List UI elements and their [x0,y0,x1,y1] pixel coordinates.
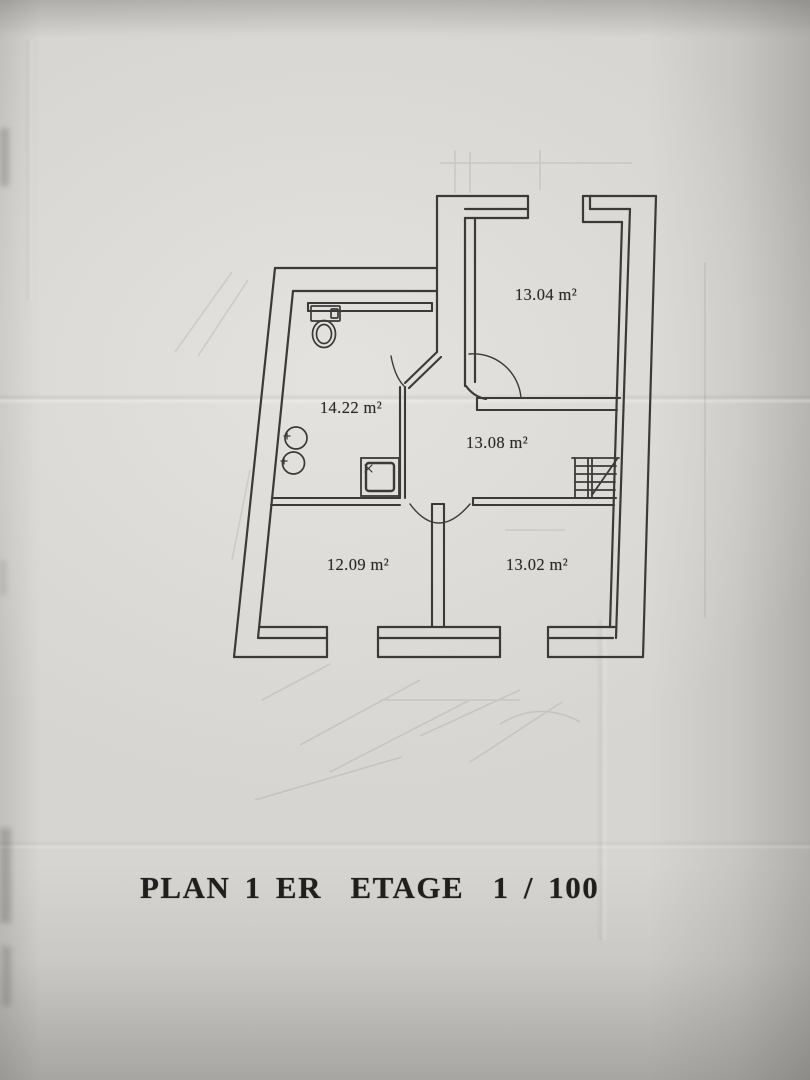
room-area-label-hall: 13.08 m² [466,433,528,453]
bleed-through-ghost-lines [175,150,705,800]
shower-icon [361,458,399,496]
room-area-label-bottom-right: 13.02 m² [506,555,568,575]
room-area-label-top-right: 13.04 m² [515,285,577,305]
room-area-label-bottom-left: 12.09 m² [327,555,389,575]
scanned-floor-plan-page: 13.04 m² 14.22 m² 13.08 m² 12.09 m² 13.0… [0,0,810,1080]
staircase-icon [572,458,619,498]
interior-walls [271,303,620,627]
sink-icons [281,427,307,474]
floor-plan-drawing [0,0,810,1080]
room-area-label-bathroom: 14.22 m² [320,398,382,418]
plan-title: PLAN 1 ER ETAGE 1 / 100 [140,870,599,906]
toilet-icon [311,306,340,348]
